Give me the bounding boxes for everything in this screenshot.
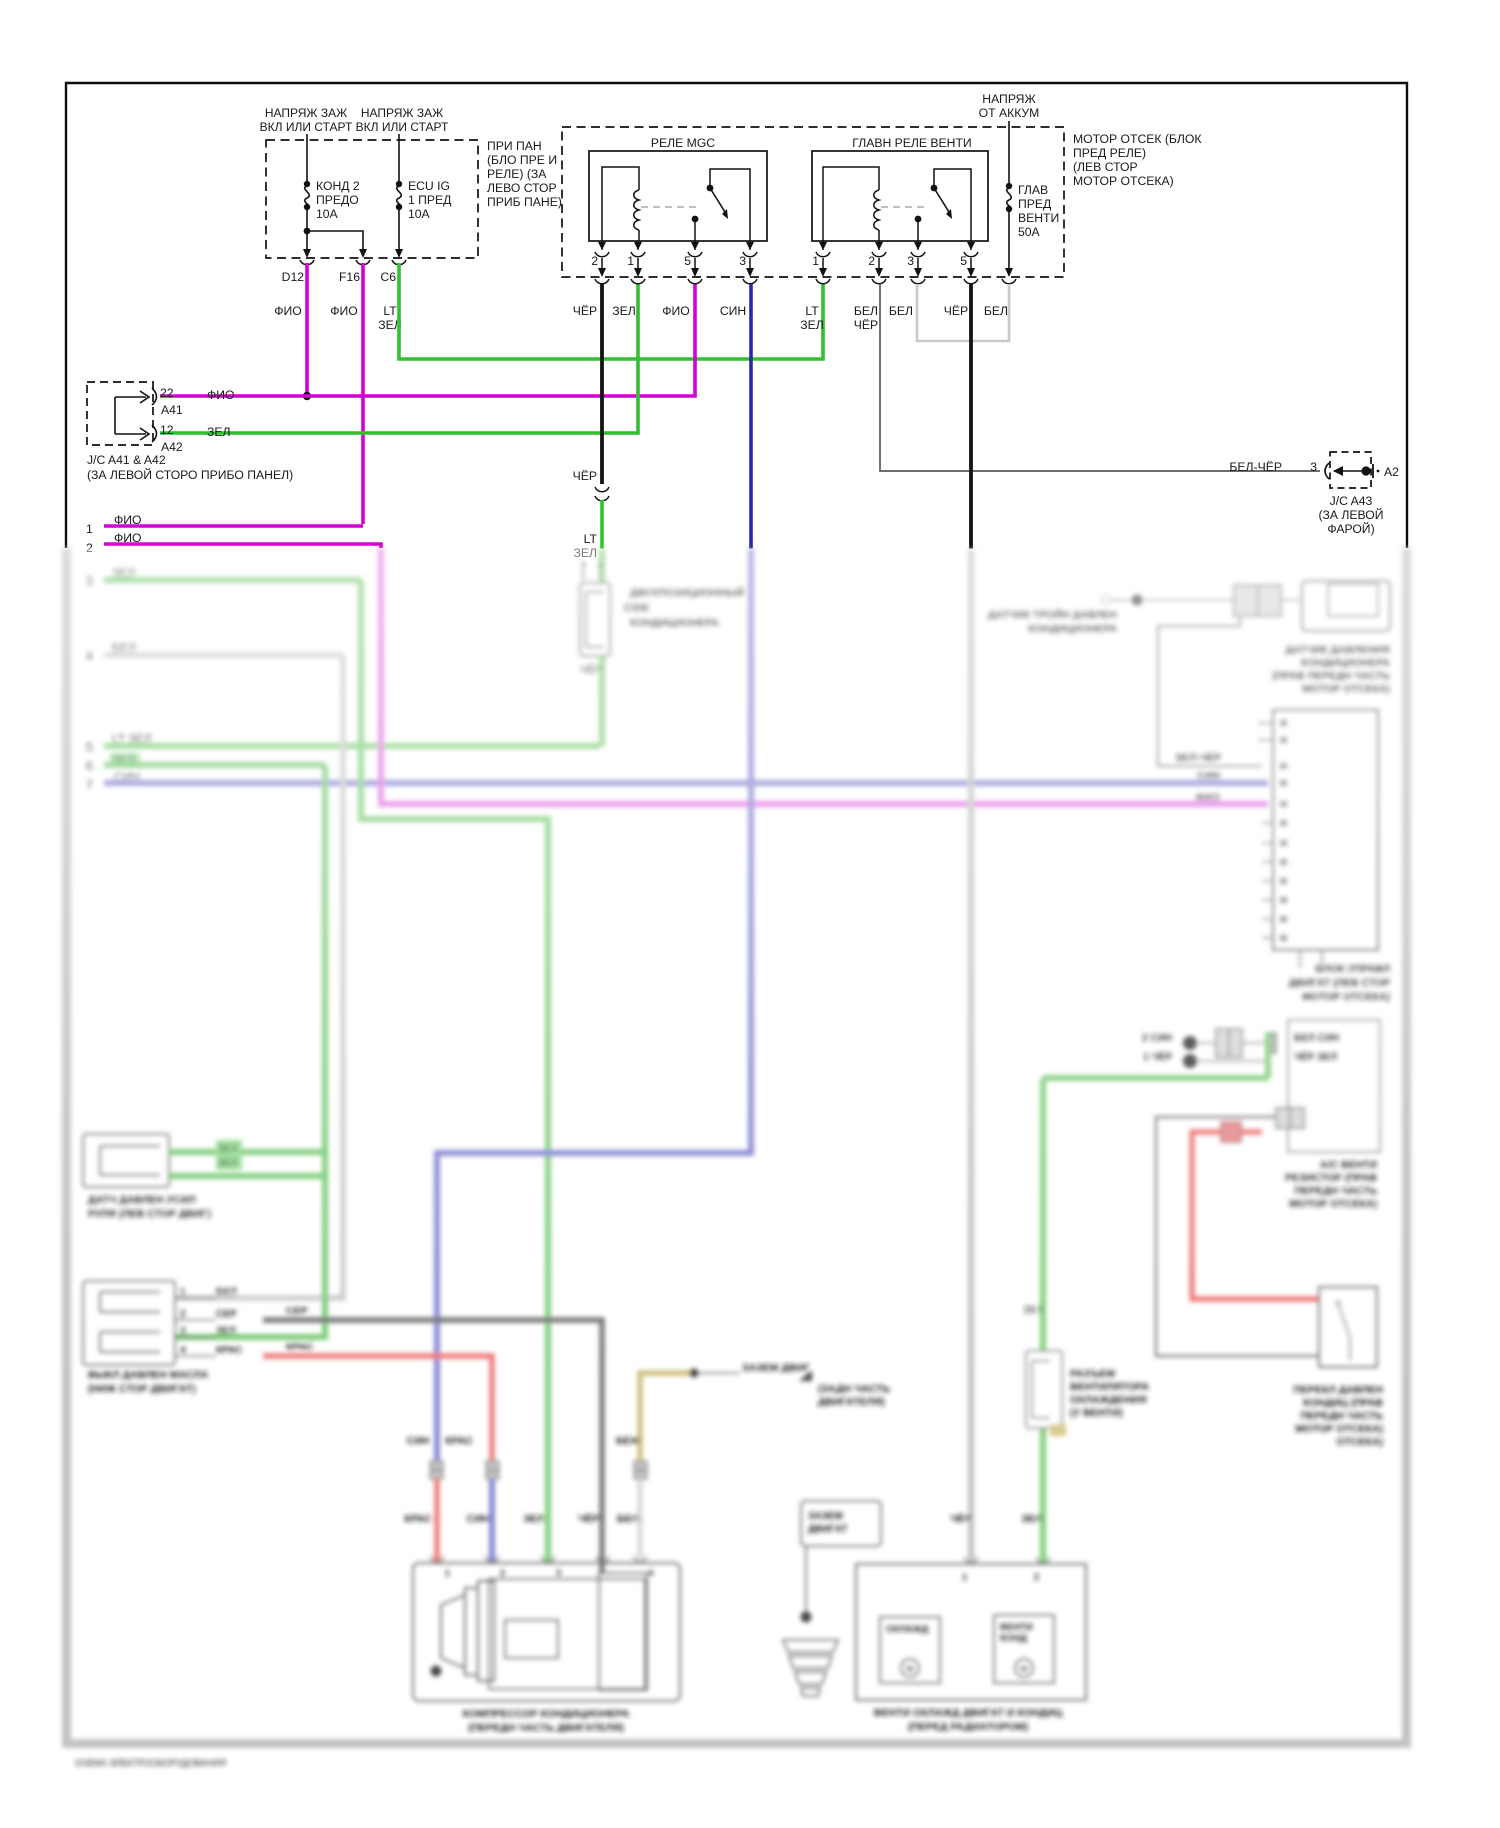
svg-text:D12: D12: [282, 270, 305, 284]
svg-text:1: 1: [627, 254, 634, 268]
svg-text:ЧЁР: ЧЁР: [573, 469, 597, 483]
svg-text:(БЛО ПРЕ И: (БЛО ПРЕ И: [487, 153, 557, 167]
svg-text:ГЛАВ: ГЛАВ: [1018, 183, 1048, 197]
svg-text:БЕЛ: БЕЛ: [984, 304, 1008, 318]
svg-text:5: 5: [960, 254, 967, 268]
svg-text:ФИО: ФИО: [662, 304, 690, 318]
svg-text:(ЛЕВ СТОР: (ЛЕВ СТОР: [1073, 160, 1138, 174]
svg-text:ФИО: ФИО: [330, 304, 358, 318]
svg-text:A41: A41: [161, 403, 183, 417]
svg-text:ГЛАВН РЕЛЕ ВЕНТИ: ГЛАВН РЕЛЕ ВЕНТИ: [852, 136, 971, 150]
svg-text:КОНД 2: КОНД 2: [316, 179, 360, 193]
svg-text:J/C A43: J/C A43: [1330, 494, 1373, 508]
svg-text:3: 3: [1310, 460, 1317, 474]
svg-text:F16: F16: [339, 270, 360, 284]
svg-text:LT: LT: [584, 532, 598, 546]
svg-text:10А: 10А: [316, 207, 339, 221]
svg-text:ECU IG: ECU IG: [408, 179, 450, 193]
svg-text:НАПРЯЖ: НАПРЯЖ: [982, 92, 1036, 106]
svg-text:ПРЕД РЕЛЕ): ПРЕД РЕЛЕ): [1073, 146, 1146, 160]
svg-text:ПРЕД: ПРЕД: [1018, 197, 1052, 211]
svg-text:МОТОР ОТСЕКА): МОТОР ОТСЕКА): [1073, 174, 1174, 188]
svg-text:БЕЛ-ЧЁР: БЕЛ-ЧЁР: [1229, 460, 1282, 474]
svg-text:5: 5: [684, 254, 691, 268]
svg-text:1 ПРЕД: 1 ПРЕД: [408, 193, 452, 207]
svg-text:ЗЕЛ: ЗЕЛ: [207, 425, 231, 439]
svg-text:ЧЁР: ЧЁР: [854, 318, 878, 332]
svg-text:2: 2: [591, 254, 598, 268]
svg-text:СИН: СИН: [720, 304, 746, 318]
svg-text:22: 22: [160, 386, 174, 400]
svg-text:A2: A2: [1384, 465, 1399, 479]
svg-text:ЗЕЛ: ЗЕЛ: [800, 318, 824, 332]
svg-text:ПРИБ ПАНЕ): ПРИБ ПАНЕ): [487, 195, 562, 209]
svg-text:ПРЕДО: ПРЕДО: [316, 193, 359, 207]
svg-text:1: 1: [812, 254, 819, 268]
svg-text:LT: LT: [805, 304, 819, 318]
svg-text:(ЗА ЛЕВОЙ: (ЗА ЛЕВОЙ: [1318, 507, 1383, 522]
svg-text:МОТОР ОТСЕК (БЛОК: МОТОР ОТСЕК (БЛОК: [1073, 132, 1202, 146]
svg-text:50А: 50А: [1018, 225, 1041, 239]
svg-text:РЕЛЕ) (ЗА: РЕЛЕ) (ЗА: [487, 167, 547, 181]
svg-text:12: 12: [160, 423, 174, 437]
svg-text:БЕЛ: БЕЛ: [854, 304, 878, 318]
svg-text:ФИО: ФИО: [207, 388, 235, 402]
svg-text:3: 3: [907, 254, 914, 268]
svg-text:ЛЕВО СТОР: ЛЕВО СТОР: [487, 181, 557, 195]
svg-text:ФИО: ФИО: [274, 304, 302, 318]
svg-text:ЗЕЛ: ЗЕЛ: [612, 304, 636, 318]
svg-text:ЧЁР: ЧЁР: [944, 304, 968, 318]
svg-text:РЕЛЕ MGC: РЕЛЕ MGC: [651, 136, 715, 150]
svg-text:ПРИ ПАН: ПРИ ПАН: [487, 139, 542, 153]
svg-text:1: 1: [86, 522, 93, 536]
svg-text:A42: A42: [161, 440, 183, 454]
svg-text:3: 3: [739, 254, 746, 268]
svg-text:ФАРОЙ): ФАРОЙ): [1327, 521, 1374, 536]
svg-text:НАПРЯЖ ЗАЖ: НАПРЯЖ ЗАЖ: [361, 106, 443, 120]
svg-text:2: 2: [868, 254, 875, 268]
svg-text:ОТ АККУМ: ОТ АККУМ: [979, 106, 1040, 120]
svg-text:БЕЛ: БЕЛ: [889, 304, 913, 318]
svg-text:(ЗА ЛЕВОЙ СТОРО ПРИБО ПАНЕЛ): (ЗА ЛЕВОЙ СТОРО ПРИБО ПАНЕЛ): [87, 467, 293, 482]
svg-text:НАПРЯЖ ЗАЖ: НАПРЯЖ ЗАЖ: [265, 106, 347, 120]
svg-text:ЧЁР: ЧЁР: [573, 304, 597, 318]
svg-text:10А: 10А: [408, 207, 431, 221]
svg-text:ВКЛ ИЛИ СТАРТ: ВКЛ ИЛИ СТАРТ: [260, 120, 353, 134]
svg-text:J/C A41 & A42: J/C A41 & A42: [87, 453, 166, 467]
svg-text:ВКЛ ИЛИ СТАРТ: ВКЛ ИЛИ СТАРТ: [356, 120, 449, 134]
svg-text:ВЕНТИ: ВЕНТИ: [1018, 211, 1059, 225]
svg-text:LT: LT: [383, 304, 397, 318]
svg-text:C6: C6: [380, 270, 396, 284]
